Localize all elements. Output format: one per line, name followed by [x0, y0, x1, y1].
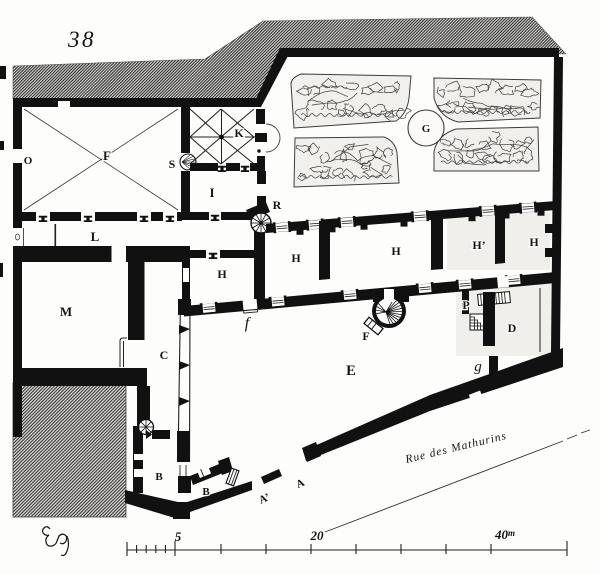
- svg-text:F: F: [103, 148, 111, 163]
- svg-text:D: D: [508, 321, 517, 335]
- svg-text:K: K: [234, 126, 244, 140]
- svg-text:M: M: [60, 304, 72, 319]
- svg-text:H: H: [291, 251, 301, 265]
- svg-text:G: G: [422, 123, 431, 135]
- svg-text:H’: H’: [472, 238, 485, 252]
- svg-text:g: g: [474, 359, 482, 375]
- svg-text:5: 5: [175, 529, 182, 544]
- svg-text:F: F: [362, 329, 369, 343]
- svg-text:H: H: [529, 235, 539, 249]
- svg-text:P: P: [462, 298, 469, 312]
- svg-text:I: I: [209, 185, 214, 200]
- svg-text:H: H: [217, 267, 227, 281]
- svg-text:H: H: [391, 244, 401, 258]
- svg-text:R: R: [273, 198, 282, 212]
- svg-text:38: 38: [67, 27, 96, 52]
- svg-text:S: S: [169, 157, 176, 171]
- svg-text:20: 20: [310, 528, 325, 543]
- svg-text:B: B: [202, 486, 210, 498]
- svg-text:O: O: [24, 155, 33, 167]
- svg-text:E: E: [346, 363, 356, 379]
- svg-text:L: L: [91, 229, 100, 244]
- svg-text:C: C: [160, 348, 169, 362]
- svg-text:B: B: [155, 471, 163, 483]
